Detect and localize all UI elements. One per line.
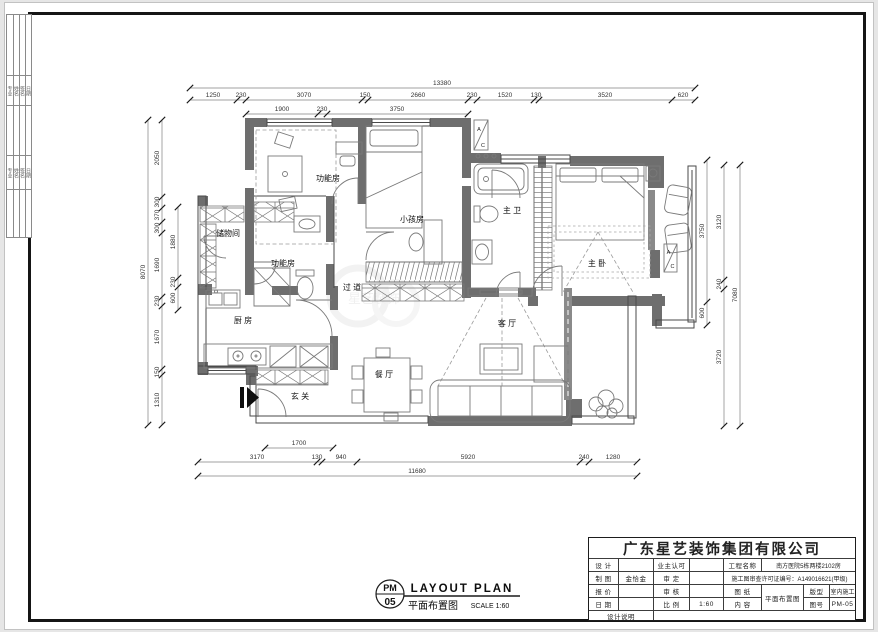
storage-cabinet — [200, 206, 244, 222]
project-value: 南方医院5栋两楼2102房 — [761, 558, 855, 571]
dim: 600 — [699, 307, 706, 318]
title-block-row-3-4: 报 价 审 核 图 纸 平面布置图 版型 室内施工 日 期 比 例 1:60 内… — [589, 584, 855, 610]
corridor-cabinet — [362, 284, 464, 301]
room-label-master-bath: 主 卫 — [503, 205, 521, 215]
dim: 1700 — [292, 440, 307, 447]
content-label: 内 容 — [723, 597, 761, 610]
storage-closet — [200, 224, 216, 288]
dim: 1280 — [606, 454, 621, 461]
dim: 370 — [154, 209, 161, 220]
caption-title-cn: 平面布置图 — [408, 600, 458, 612]
dim: 230 — [317, 106, 328, 113]
kids-wardrobe — [366, 262, 462, 282]
dim: 940 — [336, 454, 347, 461]
dim: 8070 — [140, 264, 147, 279]
owner-ok-value — [689, 558, 723, 571]
room-label-func-mid: 功能房 — [271, 258, 295, 268]
furniture-kids-room — [366, 126, 442, 264]
title-block: 广东星艺装饰集团有限公司 设 计 业主认可 工程名称 南方医院5栋两楼2102房… — [588, 537, 856, 621]
company-name: 广东星艺装饰集团有限公司 — [589, 538, 855, 558]
title-block-row-1: 设 计 业主认可 工程名称 南方医院5栋两楼2102房 — [589, 558, 855, 571]
dim: 3070 — [297, 92, 312, 99]
dim: 2660 — [411, 92, 426, 99]
master-wardrobe — [534, 166, 552, 290]
layout-value: 室内施工 — [829, 584, 855, 597]
dim: 1520 — [498, 92, 513, 99]
quote-label: 报 价 — [589, 584, 618, 597]
owner-ok-label: 业主认可 — [653, 558, 689, 571]
dim: 1250 — [206, 92, 221, 99]
plant — [589, 390, 623, 418]
room-label-entry: 玄 关 — [291, 391, 309, 401]
sliding-door-bedroom — [648, 190, 655, 250]
shoe-cabinet — [256, 370, 328, 385]
dim: 300 — [154, 222, 161, 233]
dim: 3750 — [699, 223, 706, 238]
furniture-func-room — [256, 130, 362, 244]
sheet-value: 平面布置图 — [761, 584, 803, 610]
room-label-kitchen: 厨 房 — [234, 315, 252, 325]
dim: 130 — [531, 92, 542, 99]
date-value — [618, 597, 653, 610]
caption-code-bottom: 05 — [384, 597, 396, 608]
dim: 3750 — [390, 106, 405, 113]
dim: 300 — [154, 196, 161, 207]
notes-value — [653, 610, 855, 620]
ac-marker-1: A C — [474, 120, 496, 158]
dim: 150 — [154, 366, 161, 377]
furniture-dining — [352, 348, 422, 421]
date-label: 日 期 — [589, 597, 618, 610]
windows — [208, 119, 570, 374]
furniture-master-bedroom — [548, 164, 660, 294]
dim: 150 — [360, 92, 371, 99]
room-label-master-bed: 主 卧 — [588, 258, 606, 268]
ac-letter-a: A — [477, 127, 481, 133]
license-text: 施工图审查许可证编号：A149016621(甲级) — [723, 571, 855, 584]
dim: 600 — [170, 292, 177, 303]
approve-value — [689, 571, 723, 584]
scale-value: 1:60 — [689, 597, 723, 610]
furniture-living — [430, 288, 570, 422]
dim: 1900 — [275, 106, 290, 113]
ac-letter-a: A — [667, 250, 671, 256]
dim: 1310 — [154, 392, 161, 407]
dim: 1670 — [154, 329, 161, 344]
design-value — [618, 558, 653, 571]
dim: 5920 — [461, 454, 476, 461]
dim: 1880 — [170, 234, 177, 249]
dim: 230 — [154, 295, 161, 306]
notes-label: 设计说明 — [589, 610, 653, 620]
ac-letter-c: C — [481, 143, 485, 149]
room-label-storage: 储物间 — [216, 228, 240, 238]
dim: 1690 — [154, 257, 161, 272]
number-label: 图号 — [803, 597, 829, 610]
draft-value: 金恰金 — [618, 571, 653, 584]
room-label-kids: 小孩房 — [400, 214, 424, 224]
number-value: PM-05 — [829, 597, 855, 610]
dim: 3520 — [598, 92, 613, 99]
dim: 240 — [716, 278, 723, 289]
dim: 620 — [678, 92, 689, 99]
layout-label: 版型 — [803, 584, 829, 597]
sheet-caption: PM 05 LAYOUT PLAN 平面布置图 SCALE 1:60 — [376, 580, 520, 612]
dim: 3170 — [250, 454, 265, 461]
dim: 11680 — [408, 468, 426, 475]
room-label-func-top: 功能房 — [316, 173, 340, 183]
sheet-label: 图 纸 — [723, 584, 761, 597]
approve-label: 审 定 — [653, 571, 689, 584]
audit-value — [689, 584, 723, 597]
caption-title-en: LAYOUT PLAN — [411, 583, 514, 595]
ac-letter-c: C — [671, 264, 675, 270]
audit-label: 审 核 — [653, 584, 689, 597]
drawing-sheet: 专业 姓名 签名 日期 专业 姓名 签名 日期 — [0, 0, 878, 632]
dim: 230 — [467, 92, 478, 99]
caption-code-top: PM — [383, 583, 397, 593]
dim: 230 — [236, 92, 247, 99]
dim: 240 — [579, 454, 590, 461]
room-label-corridor: 过 道 — [343, 282, 361, 292]
dim: 7080 — [732, 287, 739, 302]
furniture-kitchen — [204, 290, 332, 368]
hall-cabinet — [254, 202, 294, 222]
project-label: 工程名称 — [723, 558, 761, 571]
caption-scale: SCALE 1:60 — [471, 603, 510, 610]
title-block-notes-row: 设计说明 — [589, 610, 855, 620]
dim: 13380 — [433, 80, 451, 87]
dim: 3120 — [716, 214, 723, 229]
draft-label: 制 图 — [589, 571, 618, 584]
dim: 3720 — [716, 349, 723, 364]
room-label-dining: 餐 厅 — [375, 370, 393, 379]
scale-label: 比 例 — [653, 597, 689, 610]
design-label: 设 计 — [589, 558, 618, 571]
dim: 130 — [312, 454, 323, 461]
dim: 2050 — [154, 150, 161, 165]
dim: 230 — [170, 276, 177, 287]
title-block-row-2: 制 图 金恰金 审 定 施工图审查许可证编号：A149016621(甲级) — [589, 571, 855, 584]
quote-value — [618, 584, 653, 597]
ac-marker-2: A C — [664, 244, 677, 272]
room-label-living: 客 厅 — [498, 318, 516, 328]
